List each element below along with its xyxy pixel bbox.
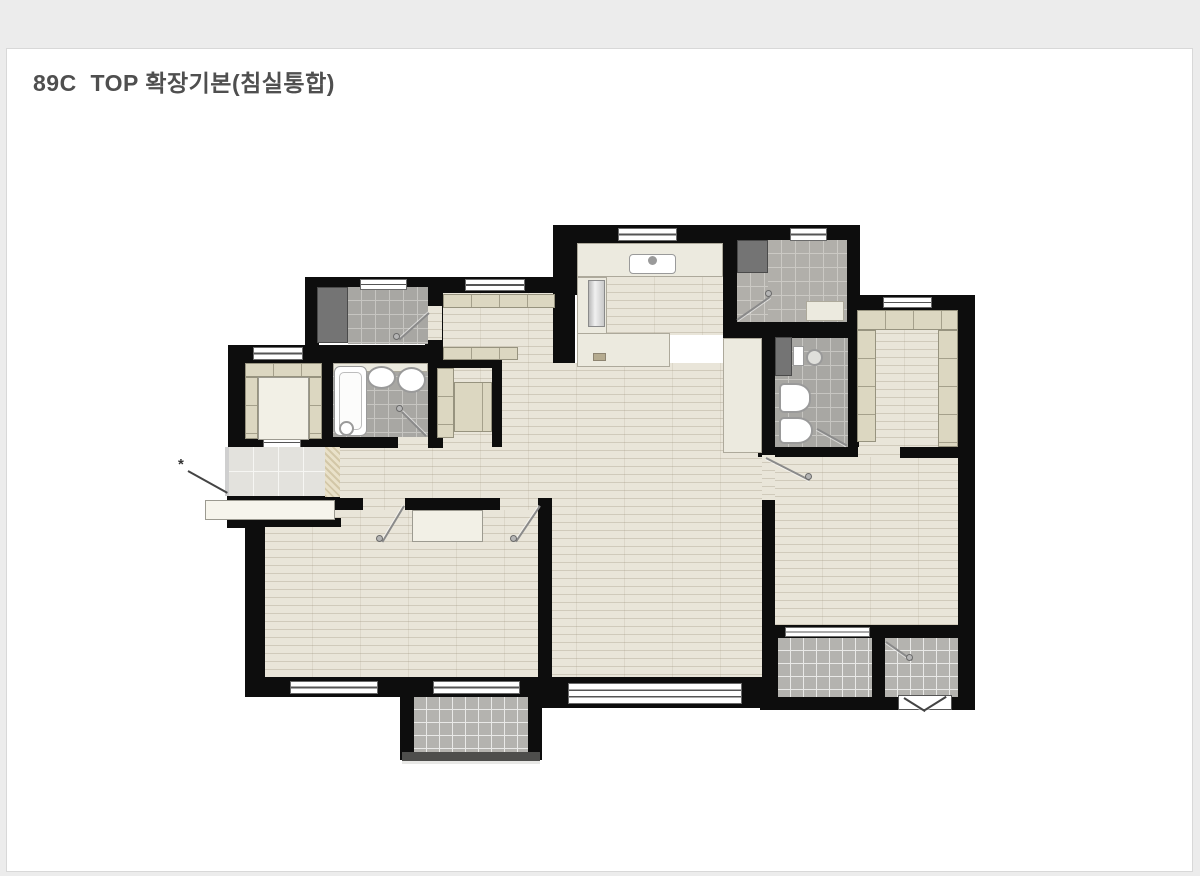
page-title: 89C TOP 확장기본(침실통합)	[33, 64, 335, 98]
door-opening-bathroom1	[398, 437, 428, 448]
door-handle	[805, 473, 812, 480]
toilet	[397, 367, 426, 393]
door-handle	[376, 535, 383, 542]
exterior-ledge	[205, 500, 335, 520]
window	[360, 279, 407, 290]
wall-segment	[425, 360, 502, 368]
floor-bedroom-left	[265, 510, 538, 677]
wall-segment	[872, 638, 885, 697]
wall-segment	[405, 498, 500, 510]
door-handle	[765, 290, 772, 297]
window	[465, 279, 525, 291]
balcony-right-tile	[778, 638, 872, 697]
wardrobe	[938, 330, 958, 447]
window	[785, 627, 870, 637]
wardrobe	[245, 363, 322, 377]
door-handle	[906, 654, 913, 661]
wardrobe	[857, 330, 876, 442]
wall-segment	[762, 330, 775, 455]
wall-segment	[492, 367, 502, 447]
wall-segment	[723, 238, 737, 330]
door-handle	[393, 333, 400, 340]
toilet	[779, 383, 811, 413]
door-handle	[510, 535, 517, 542]
kitchen-window	[618, 228, 677, 241]
wall-segment	[333, 498, 363, 510]
door-opening-laundry	[426, 306, 442, 340]
window	[433, 681, 520, 694]
toilet	[779, 417, 813, 444]
cooktop	[593, 353, 606, 361]
balcony-window-line	[225, 447, 229, 496]
bath-mat	[339, 421, 354, 436]
balcony-left-tile	[229, 447, 325, 496]
wardrobe	[857, 310, 958, 330]
wall-segment	[553, 293, 575, 363]
bathroom2-cabinet	[775, 337, 792, 376]
wall-segment	[245, 518, 265, 697]
sink-bowl	[806, 349, 823, 366]
bed-panel	[258, 377, 309, 440]
shoe-closet	[737, 240, 768, 273]
tall-cabinet	[723, 338, 762, 453]
laundry-tile-floor	[348, 287, 428, 344]
window	[290, 681, 378, 694]
wall-segment	[538, 498, 552, 684]
wardrobe	[245, 377, 258, 439]
living-room-window	[568, 683, 742, 704]
wardrobe	[443, 294, 555, 308]
sink	[367, 366, 396, 389]
balcony-edge	[402, 752, 540, 761]
wardrobe	[309, 377, 322, 439]
balcony-edge-line	[402, 761, 540, 764]
entry-bench	[806, 301, 844, 321]
wardrobe	[454, 382, 492, 432]
balcony-texture-strip	[325, 447, 340, 497]
escape-marker: *	[178, 456, 184, 473]
window	[253, 347, 303, 360]
wall-segment	[322, 345, 333, 448]
wall-segment	[900, 447, 960, 458]
faucet	[648, 256, 657, 265]
refrigerator	[588, 280, 605, 327]
page: { "header": { "title": "89C TOP 확장기본(침실통…	[0, 0, 1200, 876]
wardrobe	[443, 347, 518, 360]
window	[883, 297, 932, 308]
desk	[412, 510, 483, 542]
utility-closet	[317, 287, 348, 343]
wall-segment	[958, 295, 975, 710]
wall-segment	[723, 320, 862, 338]
floor-bedroom-right	[775, 457, 958, 625]
wall-segment	[400, 693, 414, 760]
sink	[793, 346, 804, 366]
wardrobe	[437, 368, 454, 438]
door-handle	[396, 405, 403, 412]
door-opening-dressing	[858, 447, 900, 457]
kitchen-counter-bottom	[577, 333, 670, 367]
entry-door	[790, 228, 827, 241]
balcony-bottom-tile	[414, 697, 528, 754]
floor-kitchen	[607, 277, 723, 335]
